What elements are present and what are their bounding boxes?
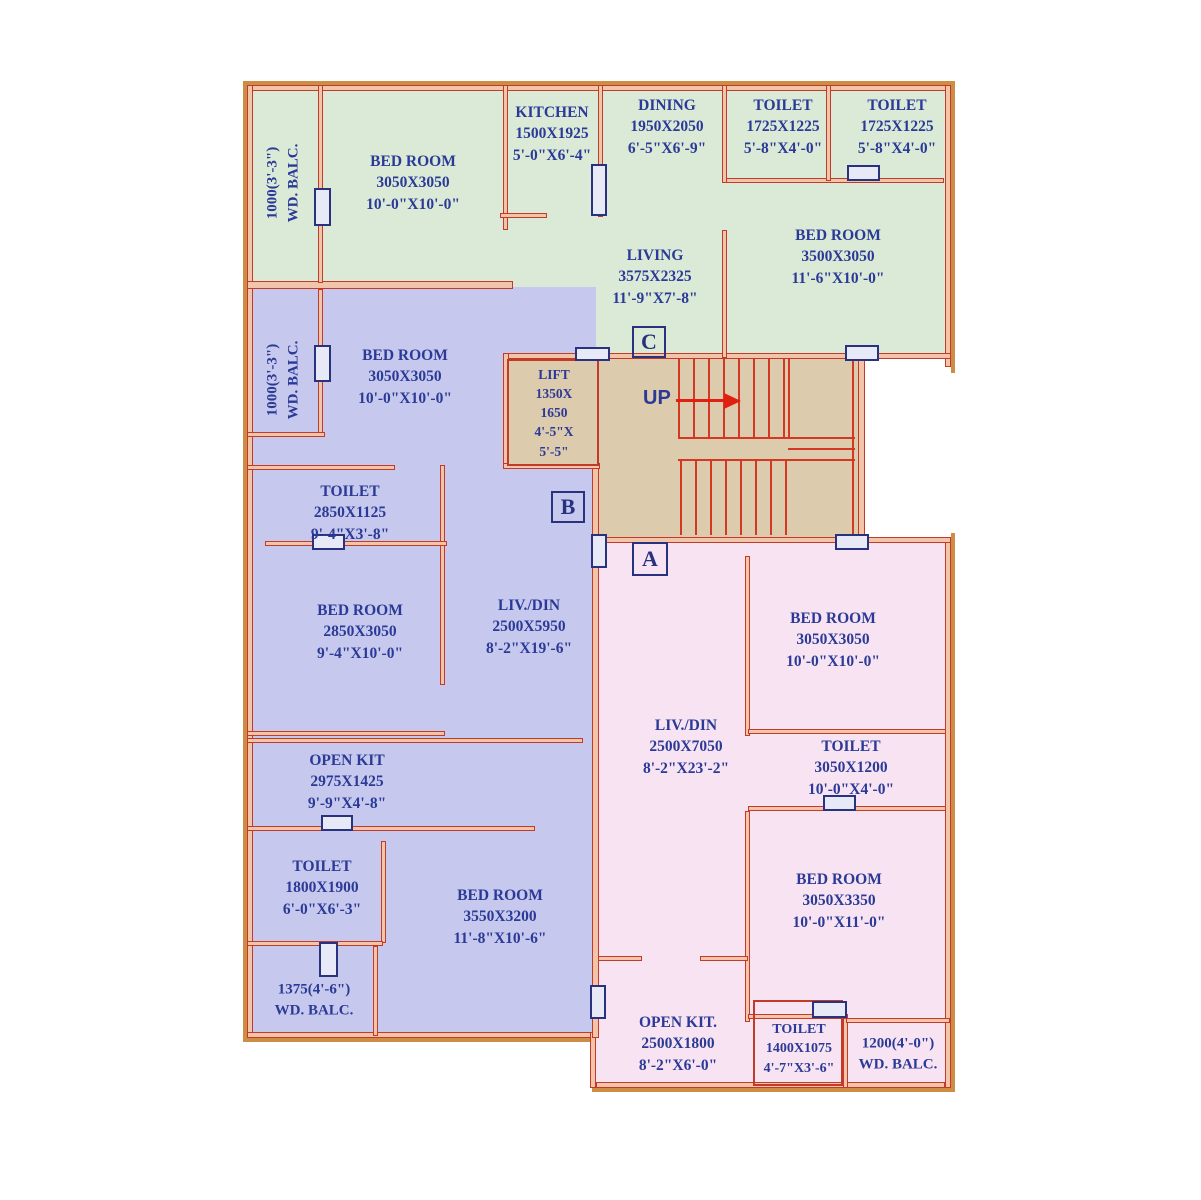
wall	[722, 85, 727, 183]
stair-landing-line	[678, 459, 855, 461]
wall	[500, 213, 547, 218]
room-label-bedroom-c2: BED ROOM3500X305011'-6"X10'-0"	[792, 225, 885, 289]
wall	[247, 941, 383, 946]
door-toilet-c2	[847, 165, 880, 181]
wall	[247, 826, 535, 831]
room-label-toilet-b2: TOILET1800X19006'-0"X6'-3"	[283, 856, 361, 920]
up-arrow-line	[676, 399, 726, 402]
room-label-dining: DINING1950X20506'-5"X6'-9"	[628, 95, 706, 159]
room-label-bedroom-b1: BED ROOM3050X305010'-0"X10'-0"	[358, 345, 452, 409]
wall	[945, 85, 951, 367]
wall	[247, 85, 253, 1038]
wall	[745, 811, 750, 1022]
room-label-bedroom-c1: BED ROOM3050X305010'-0"X10'-0"	[366, 151, 460, 215]
outer-frame	[951, 533, 955, 1092]
marker-b: B	[551, 491, 585, 523]
room-label-toilet-b1: TOILET2850X11259'-4"X3'-8"	[311, 481, 389, 545]
wall	[373, 946, 378, 1036]
stair-flight-divider	[788, 359, 790, 439]
room-label-toilet-c2: TOILET1725X12255'-8"X4'-0"	[858, 95, 936, 159]
wall	[745, 556, 750, 736]
wall	[247, 281, 513, 289]
wall	[726, 178, 944, 183]
door-toilet-a2	[812, 1001, 847, 1018]
room-label-toilet-a2: TOILET1400X10754'-7"X3'-6"	[764, 1020, 835, 1078]
stair-inner-wall-line	[852, 359, 854, 537]
wall	[598, 956, 642, 961]
up-arrow-head	[724, 393, 741, 409]
floor-plan: BED ROOM3050X305010'-0"X10'-0" KITCHEN15…	[0, 0, 1201, 1200]
wall	[700, 956, 748, 961]
outer-frame	[951, 81, 955, 373]
outer-frame	[243, 1038, 596, 1042]
balcony-label-c: 1000(3'-3")WD. BALC.	[262, 144, 303, 223]
door-balcony-c	[314, 188, 331, 226]
balcony-label-b: 1000(3'-3")WD. BALC.	[262, 341, 303, 420]
wall	[318, 85, 323, 283]
lift-label: LIFT1350X1650 4'-5"X5'-5"	[535, 365, 574, 461]
balcony-label-a: 1200(4'-0")WD. BALC.	[859, 1033, 938, 1074]
room-label-bedroom-b2: BED ROOM2850X30509'-4"X10'-0"	[317, 600, 403, 664]
room-label-openkit-a: OPEN KIT.2500X18008'-2"X6'-0"	[639, 1012, 717, 1076]
room-label-bedroom-a2: BED ROOM3050X335010'-0"X11'-0"	[793, 869, 886, 933]
stair-treads-lower	[680, 461, 791, 535]
wall	[846, 1018, 950, 1023]
wall	[247, 1032, 596, 1038]
door-balcony-b	[314, 345, 331, 382]
wall	[247, 738, 583, 743]
wall	[826, 85, 831, 181]
door-bedroom-c2	[845, 345, 879, 361]
marker-c: C	[632, 326, 666, 358]
room-label-kitchen: KITCHEN1500X19255'-0"X6'-4"	[513, 102, 591, 166]
room-label-toilet-c1: TOILET1725X12255'-8"X4'-0"	[744, 95, 822, 159]
stair-landing-line	[678, 437, 855, 439]
stair-landing-line	[788, 448, 855, 450]
wall	[858, 353, 865, 543]
wall	[440, 465, 445, 685]
wall	[381, 841, 386, 943]
wall	[590, 1032, 596, 1088]
room-label-bedroom-a1: BED ROOM3050X305010'-0"X10'-0"	[786, 608, 880, 672]
door-kitchen	[591, 164, 607, 216]
marker-a: A	[632, 542, 668, 576]
wall	[503, 85, 508, 230]
door-balcony-b2	[319, 942, 338, 977]
room-label-toilet-a1: TOILET3050X120010'-0"X4'-0"	[808, 736, 894, 800]
wall	[945, 537, 951, 1088]
room-label-bedroom-b3: BED ROOM3550X320011'-8"X10'-6"	[454, 885, 547, 949]
wall	[247, 432, 325, 437]
wall	[722, 230, 727, 358]
balcony-label-b2: 1375(4'-6")WD. BALC.	[275, 979, 354, 1020]
room-label-livdin-a: LIV./DIN2500X70508'-2"X23'-2"	[643, 715, 729, 779]
door-bedroom-a1	[835, 534, 869, 550]
room-label-livdin-b: LIV./DIN2500X59508'-2"X19'-6"	[486, 595, 572, 659]
stair-up-label: UP	[643, 387, 671, 410]
outer-frame	[592, 1088, 955, 1092]
room-label-openkit-b: OPEN KIT2975X14259'-9"X4'-8"	[308, 750, 386, 814]
door-openkit-b	[321, 815, 353, 831]
wall	[843, 1018, 848, 1088]
room-label-living: LIVING3575X232511'-9"X7'-8"	[612, 245, 697, 309]
wall	[748, 729, 946, 734]
door-entry-a	[591, 534, 607, 568]
wall	[247, 465, 395, 470]
wall	[247, 731, 445, 736]
door-openkit-a	[590, 985, 606, 1019]
door-entry-c	[575, 347, 610, 361]
